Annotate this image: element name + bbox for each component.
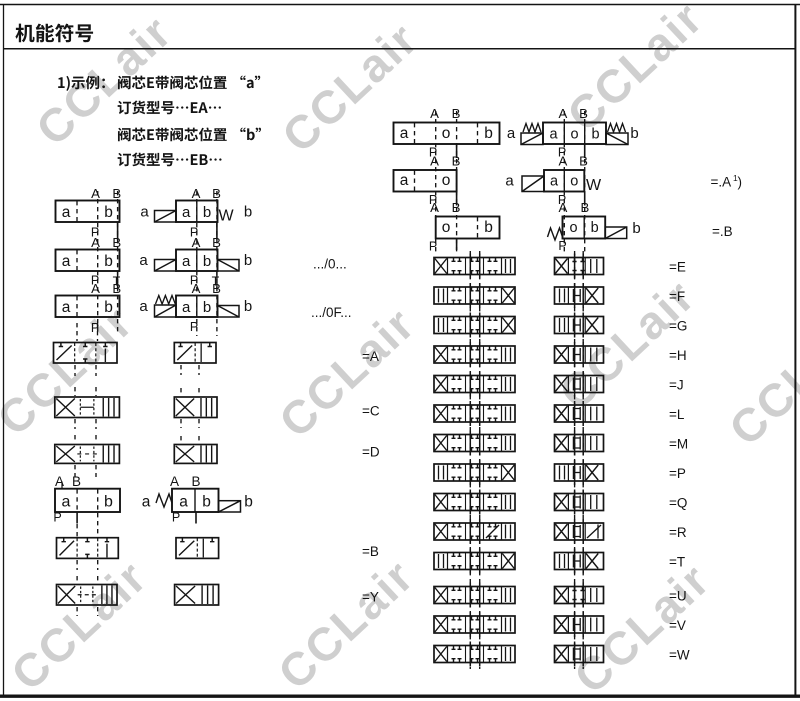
svg-text:B: B [112, 281, 121, 296]
svg-text:=M: =M [669, 437, 688, 452]
svg-text:P: P [172, 511, 180, 525]
svg-text:=A: =A [362, 349, 379, 364]
svg-text:o: o [442, 219, 451, 236]
svg-text:=Q: =Q [669, 496, 687, 511]
svg-text:=E: =E [669, 260, 686, 275]
svg-text:b: b [203, 299, 211, 316]
svg-text:A: A [559, 200, 568, 215]
svg-text:b: b [630, 125, 638, 142]
svg-text:=F: =F [669, 289, 685, 304]
svg-text:a: a [400, 125, 409, 142]
svg-text:A: A [91, 235, 100, 250]
svg-text:b: b [244, 204, 252, 221]
svg-text:=G: =G [669, 319, 687, 334]
svg-text:=T: =T [669, 555, 685, 570]
svg-text:a: a [62, 253, 71, 270]
svg-text:A: A [430, 106, 439, 121]
svg-text:A: A [430, 154, 439, 169]
svg-text:b: b [203, 204, 211, 221]
svg-text:a: a [550, 174, 559, 190]
svg-text:o: o [442, 172, 451, 189]
svg-text:A: A [91, 186, 100, 201]
svg-text:b: b [591, 220, 599, 236]
svg-text:B: B [452, 106, 461, 121]
svg-text:a: a [507, 125, 516, 142]
svg-text:=V: =V [669, 618, 686, 633]
svg-text:a: a [62, 494, 71, 511]
svg-text:=H: =H [669, 348, 687, 363]
svg-text:A: A [430, 200, 439, 215]
svg-text:a: a [139, 252, 148, 269]
svg-text:a: a [142, 494, 151, 511]
svg-text:a: a [140, 204, 149, 221]
svg-text:B: B [72, 474, 81, 489]
svg-text:P: P [558, 239, 566, 253]
svg-text:b: b [484, 219, 493, 236]
svg-text:B: B [212, 235, 221, 250]
svg-text:a: a [182, 204, 191, 221]
svg-text:B: B [191, 474, 200, 489]
svg-text:a: a [62, 204, 71, 221]
svg-text:A: A [192, 235, 201, 250]
svg-text:b: b [104, 299, 113, 316]
svg-text:=J: =J [669, 378, 684, 393]
svg-text:W: W [586, 177, 602, 194]
svg-text:B: B [112, 235, 121, 250]
svg-text:P: P [429, 240, 437, 254]
svg-text:CCLair: CCLair [1, 550, 157, 700]
svg-text:b: b [104, 253, 113, 270]
svg-text:a: a [62, 299, 71, 316]
svg-text:a: a [182, 299, 191, 316]
svg-text:b: b [244, 252, 252, 269]
svg-text:=Y: =Y [362, 590, 379, 605]
svg-text:): ) [738, 175, 743, 190]
svg-text:CCLair: CCLair [564, 553, 720, 701]
svg-text:b: b [484, 125, 493, 142]
svg-text:a: a [139, 298, 148, 315]
svg-text:B: B [452, 200, 461, 215]
svg-text:o: o [570, 174, 578, 190]
svg-text:B: B [579, 106, 588, 121]
svg-text:B: B [212, 281, 221, 296]
svg-text:B: B [579, 154, 588, 169]
svg-text:=D: =D [362, 445, 380, 460]
svg-text:a: a [505, 173, 514, 190]
svg-text:o: o [570, 127, 578, 143]
svg-text:b: b [244, 298, 252, 315]
svg-text:o: o [442, 125, 451, 142]
svg-text:b: b [104, 204, 113, 221]
svg-text:=C: =C [362, 404, 380, 419]
svg-text:B: B [212, 186, 221, 201]
svg-text:P: P [53, 511, 61, 525]
svg-text:.../0...: .../0... [313, 257, 347, 272]
svg-text:b: b [203, 253, 211, 270]
svg-text:.../0F...: .../0F... [311, 305, 352, 320]
svg-text:=R: =R [669, 525, 687, 540]
svg-text:=W: =W [669, 648, 690, 663]
svg-text:B: B [581, 200, 590, 215]
svg-text:b: b [632, 220, 640, 237]
svg-text:=U: =U [669, 589, 687, 604]
svg-text:W: W [218, 208, 234, 225]
svg-text:=.A: =.A [711, 175, 732, 190]
svg-text:A: A [192, 186, 201, 201]
svg-text:o: o [569, 220, 577, 236]
svg-text:=L: =L [669, 407, 685, 422]
svg-text:a: a [179, 494, 188, 511]
svg-text:P: P [190, 320, 198, 334]
svg-text:b: b [244, 494, 253, 511]
svg-text:A: A [192, 281, 201, 296]
svg-text:B: B [112, 186, 121, 201]
svg-text:B: B [452, 154, 461, 169]
svg-text:A: A [91, 281, 100, 296]
svg-text:b: b [202, 494, 211, 511]
svg-text:=.B: =.B [712, 224, 733, 239]
svg-text:=P: =P [669, 466, 686, 481]
svg-text:b: b [104, 494, 113, 511]
svg-text:CCLair: CCLair [719, 305, 800, 455]
svg-text:b: b [591, 127, 599, 143]
svg-text:A: A [559, 154, 568, 169]
svg-text:A: A [55, 474, 64, 489]
svg-text:a: a [182, 253, 191, 270]
svg-text:=B: =B [362, 544, 379, 559]
svg-text:a: a [549, 127, 558, 143]
svg-text:CCLair: CCLair [268, 549, 424, 699]
svg-text:A: A [170, 474, 179, 489]
svg-text:a: a [400, 172, 409, 189]
svg-text:A: A [559, 106, 568, 121]
